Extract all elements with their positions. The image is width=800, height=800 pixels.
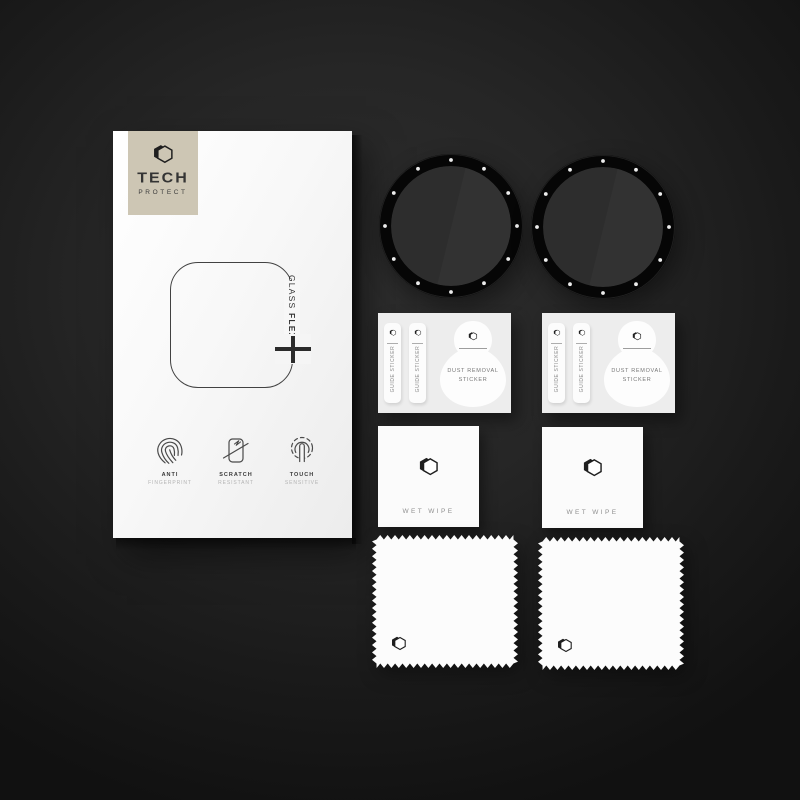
- dust-sticker-label-line1: DUST REMOVAL: [438, 368, 508, 374]
- feature-title: SCRATCH: [219, 472, 252, 478]
- fingerprint-icon: [153, 434, 187, 468]
- divider: [576, 343, 587, 344]
- feature-title: TOUCH: [290, 472, 314, 478]
- feature-subtitle: FINGERPRINT: [148, 480, 192, 486]
- divider: [387, 343, 398, 344]
- wet-wipe-packet-1: WET WIPE: [378, 426, 479, 527]
- sticker-card-2: GUIDE STICKER GUIDE STICKER DUST REMOVAL…: [542, 313, 675, 413]
- feature-subtitle: RESISTANT: [218, 480, 254, 486]
- scratch-phone-icon: [219, 434, 253, 468]
- brand-badge: TECH PROTECT: [128, 131, 198, 215]
- dust-sticker-label-line2: STICKER: [438, 377, 508, 383]
- feature-touch-sensitive: TOUCH SENSITIVE: [270, 434, 334, 486]
- dust-sticker-label-line2: STICKER: [602, 377, 672, 383]
- dust-removal-sticker: DUST REMOVAL STICKER: [438, 319, 508, 408]
- guide-sticker-label: GUIDE STICKER: [579, 345, 585, 392]
- feature-title: ANTI: [162, 472, 179, 478]
- tech-protect-logo-icon: [388, 328, 397, 337]
- guide-sticker-label: GUIDE STICKER: [554, 345, 560, 392]
- dust-removal-sticker: DUST REMOVAL STICKER: [602, 319, 672, 408]
- product-photo-scene: TECH PROTECT GLASS FLEX ANTI FINGERPRINT: [0, 0, 800, 800]
- tech-protect-logo-icon: [389, 633, 409, 653]
- feature-anti-fingerprint: ANTI FINGERPRINT: [138, 434, 202, 486]
- watch-outline-graphic: [170, 262, 293, 388]
- microfiber-cloth-1: [372, 535, 518, 668]
- feature-scratch-resistant: SCRATCH RESISTANT: [204, 434, 268, 486]
- wet-wipe-packet-2: WET WIPE: [542, 427, 643, 528]
- wet-wipe-label: WET WIPE: [378, 508, 479, 515]
- retail-box: TECH PROTECT GLASS FLEX ANTI FINGERPRINT: [113, 131, 352, 538]
- tech-protect-logo-icon: [552, 328, 561, 337]
- tech-protect-logo-icon: [150, 140, 177, 167]
- tech-protect-logo-icon: [577, 328, 586, 337]
- protector-ring-graphic: [531, 155, 675, 299]
- guide-sticker: GUIDE STICKER: [573, 323, 590, 403]
- brand-name: TECH: [137, 171, 189, 188]
- plus-mark-icon: [275, 334, 311, 364]
- brand-subname: PROTECT: [138, 189, 187, 196]
- tech-protect-logo-icon: [580, 454, 606, 480]
- tech-protect-logo-icon: [416, 453, 442, 479]
- watch-glass-protector-2: [531, 155, 675, 299]
- wet-wipe-label: WET WIPE: [542, 509, 643, 516]
- tech-protect-logo-icon: [555, 635, 575, 655]
- dust-sticker-label-line1: DUST REMOVAL: [602, 368, 672, 374]
- sticker-card-1: GUIDE STICKER GUIDE STICKER DUST REMOVAL…: [378, 313, 511, 413]
- guide-sticker: GUIDE STICKER: [548, 323, 565, 403]
- guide-sticker-label: GUIDE STICKER: [390, 345, 396, 392]
- guide-sticker: GUIDE STICKER: [409, 323, 426, 403]
- divider: [459, 348, 487, 349]
- protector-ring-graphic: [379, 154, 523, 298]
- guide-sticker: GUIDE STICKER: [384, 323, 401, 403]
- microfiber-cloth-2: [538, 537, 684, 670]
- product-name: GLASS FLEX: [284, 279, 300, 336]
- touch-finger-icon: [285, 434, 319, 468]
- tech-protect-logo-icon: [631, 330, 643, 342]
- feature-row: ANTI FINGERPRINT SCRATCH RESISTANT TOU: [138, 434, 334, 486]
- feature-subtitle: SENSITIVE: [285, 480, 319, 486]
- watch-glass-protector-1: [379, 154, 523, 298]
- tech-protect-logo-icon: [413, 328, 422, 337]
- divider: [551, 343, 562, 344]
- divider: [623, 348, 651, 349]
- divider: [412, 343, 423, 344]
- guide-sticker-label: GUIDE STICKER: [415, 345, 421, 392]
- tech-protect-logo-icon: [467, 330, 479, 342]
- product-name-glass: GLASS: [287, 275, 297, 309]
